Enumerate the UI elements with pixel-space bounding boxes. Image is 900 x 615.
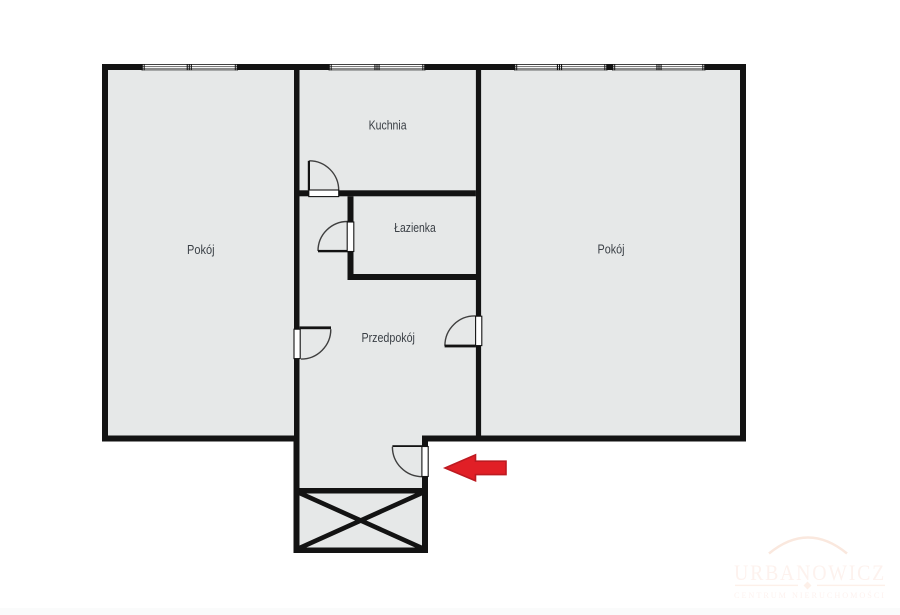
svg-text:Pokój: Pokój xyxy=(598,241,625,256)
svg-text:Pokój: Pokój xyxy=(187,242,215,257)
svg-text:Kuchnia: Kuchnia xyxy=(369,117,408,132)
svg-text:URBANOWICZ: URBANOWICZ xyxy=(734,560,886,585)
svg-text:Łazienka: Łazienka xyxy=(394,220,436,235)
svg-text:CENTRUM NIERUCHOMOŚCI: CENTRUM NIERUCHOMOŚCI xyxy=(734,590,886,600)
svg-text:Przedpokój: Przedpokój xyxy=(361,330,415,345)
